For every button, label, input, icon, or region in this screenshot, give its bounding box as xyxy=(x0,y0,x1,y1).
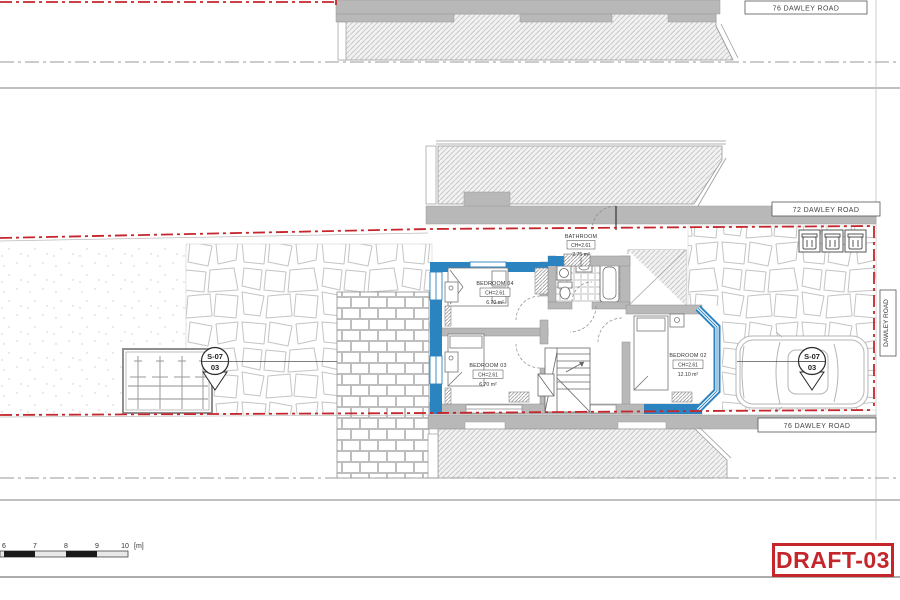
ceiling-height: CH=2.61 xyxy=(571,243,591,249)
bed xyxy=(634,316,668,390)
bin-icon xyxy=(845,230,866,252)
room-area: 6.70 m² xyxy=(486,300,504,306)
road-label-text: 72 DAWLEY ROAD xyxy=(793,207,860,214)
section-code: S-07 xyxy=(804,352,820,361)
section-sheet: 03 xyxy=(808,363,816,372)
room-name: BEDROOM 02 xyxy=(669,353,706,359)
room-name: BEDROOM 04 xyxy=(476,281,513,287)
scale-tick: 10 xyxy=(121,543,129,550)
room-name: BATHROOM xyxy=(565,234,598,240)
section-sheet: 03 xyxy=(211,363,219,372)
outbuilding xyxy=(628,250,686,306)
room-area: 6.70 m² xyxy=(479,382,497,388)
bin-icon xyxy=(822,230,843,252)
ceiling-height: CH=2.61 xyxy=(478,373,498,379)
bin-store xyxy=(799,230,866,252)
ceiling-height: CH=2.61 xyxy=(678,363,698,369)
scale-tick: 6 xyxy=(2,543,6,550)
bathroom xyxy=(556,262,620,302)
scale-tick: 8 xyxy=(64,543,68,550)
scale-tick: 7 xyxy=(33,543,37,550)
scale-unit: [m] xyxy=(134,543,144,550)
road-label-text: DAWLEY ROAD xyxy=(883,299,890,347)
road-label-top: 76 DAWLEY ROAD xyxy=(745,1,867,14)
side-path-pavers xyxy=(337,292,429,478)
road-label-side: DAWLEY ROAD xyxy=(880,290,896,356)
road-label-bottom: 76 DAWLEY ROAD xyxy=(758,418,876,432)
room-name: BEDROOM 03 xyxy=(469,363,506,369)
site-plan-drawing: S-07 03 S-07 03 76 DAWLEY ROAD 72 DAWLEY… xyxy=(0,0,900,600)
bike-store xyxy=(123,349,212,413)
road-label-text: 76 DAWLEY ROAD xyxy=(784,423,851,430)
neighbor-building-middle xyxy=(426,141,876,230)
room-area: 12.10 m² xyxy=(678,372,699,378)
neighbor-building-top xyxy=(336,0,738,60)
road-label-text: 76 DAWLEY ROAD xyxy=(773,6,840,13)
draft-stamp-label: DRAFT-03 xyxy=(776,547,890,574)
scale-tick: 9 xyxy=(95,543,99,550)
staircase xyxy=(538,348,590,412)
scale-bar: 6 7 8 9 10 [m] xyxy=(0,543,144,557)
section-code: S-07 xyxy=(207,352,223,361)
draft-stamp: DRAFT-03 xyxy=(772,543,894,577)
floor-plan-sheet: S-07 03 S-07 03 76 DAWLEY ROAD 72 DAWLEY… xyxy=(0,0,900,600)
bin-icon xyxy=(799,230,820,252)
road-label-middle: 72 DAWLEY ROAD xyxy=(772,202,880,216)
room-area: 2.75 m² xyxy=(572,252,590,258)
ceiling-height: CH=2.61 xyxy=(485,291,505,297)
